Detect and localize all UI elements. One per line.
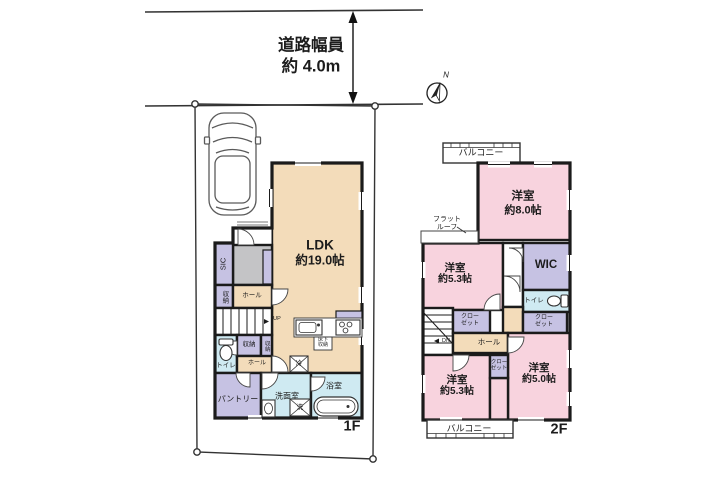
room-bathroom-label: 浴室 [326,381,342,390]
room-ldk-label: LDK 約19.0帖 [295,238,344,269]
room-hall-b-label: ホール [248,360,266,367]
bedroom50-name: 洋室 [522,362,556,374]
underfloor-line2: 収納 [318,344,328,350]
bedroom8-name: 洋室 [504,191,541,205]
road-width-arrow [349,11,358,104]
room-toilet-1f-label: トイレ [216,362,236,370]
room-storage-c-label: 収納 [263,341,269,352]
bedroom53a-size: 約5.3帖 [438,274,472,286]
stairs-up-label: UP [273,316,281,322]
compass-icon [425,80,450,106]
bedroom53b-size: 約5.3帖 [440,386,474,398]
room-bedroom53b-label: 洋室 約5.3帖 [440,374,474,398]
floor1-label: 1F [344,418,361,435]
room-storage-b-label: 収納 [243,341,256,349]
room-pantry-label: パントリー [218,394,258,403]
closet-b-label: クロー ゼット [535,315,553,329]
room-toilet-2f-label: トイレ [524,297,544,305]
bedroom50-size: 約5.0帖 [522,374,556,386]
floorplan-drawing [0,0,720,480]
room-bedroom8-label: 洋室 約8.0帖 [504,191,541,218]
stairs-dn-label: DN [442,338,450,344]
flat-roof-line2: ルーフ [433,224,461,232]
fridge-label: 冷 [296,360,303,368]
floor2-label: 2F [551,421,568,438]
balcony-bottom-label: バルコニー [447,424,492,435]
compass-north-label: N [443,70,449,79]
room-bedroom50-label: 洋室 約5.0帖 [522,362,556,386]
room-ldk-size: 約19.0帖 [295,254,344,269]
road-width-label-line1: 道路幅員 [278,36,344,55]
room-wic-label: WIC [535,259,557,273]
room-hall-a-label: ホール [242,292,262,300]
room-bedroom53a-label: 洋室 約5.3帖 [438,262,472,286]
room-storage-a-label: 収納 [220,291,228,304]
flat-roof-line1: フラット [433,216,461,224]
porch-steps [237,222,268,225]
closet-a-line2: ゼット [461,321,479,328]
closet-c-line2: ゼット [491,366,508,372]
room-hall-2f-label: ホール [478,339,501,348]
balcony-top-label: バルコニー [459,148,504,159]
bedroom8-size: 約8.0帖 [504,204,541,217]
car-icon [205,113,261,215]
underfloor-storage-label: 床下 収納 [318,338,328,350]
room-ldk-name: LDK [295,238,344,254]
bedroom53a-name: 洋室 [438,262,472,274]
toilet-2f-fixture [548,295,569,307]
closet-b-line2: ゼット [535,322,553,329]
bedroom53b-name: 洋室 [440,374,474,386]
room-sic-label: SIC [220,258,229,271]
closet-c-label: クロー ゼット [491,360,508,373]
closet-a-label: クロー ゼット [461,314,479,328]
flat-roof-label: フラット ルーフ [433,216,461,233]
road-width-label-line2: 約 4.0m [282,57,341,76]
room-washroom-label: 洗面室 [275,391,299,400]
washer-label: 洗 [297,404,304,412]
floorplan-canvas: 道路幅員 約 4.0m N LDK 約19.0帖 SIC 収納 ホール UP 収… [0,0,720,480]
